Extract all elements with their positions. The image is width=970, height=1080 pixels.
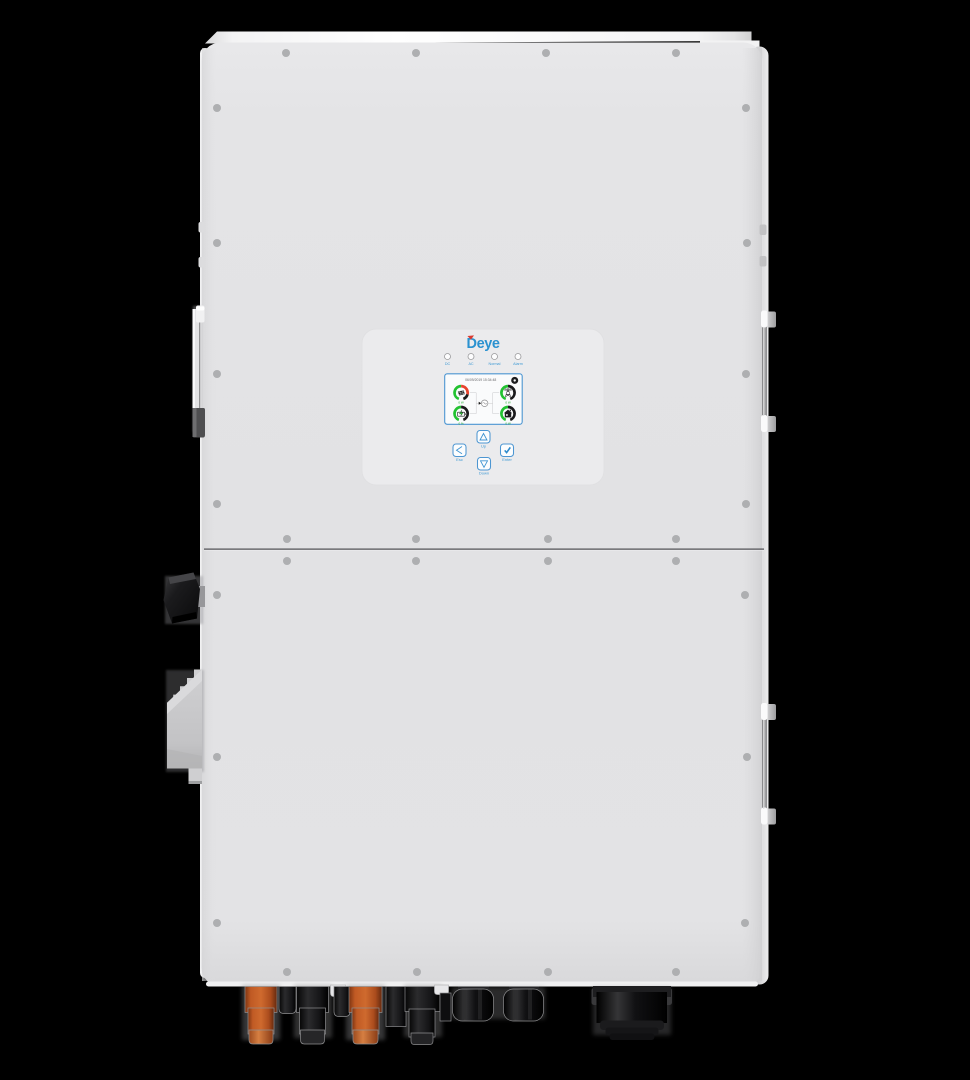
- svg-text:0 W: 0 W: [505, 401, 511, 405]
- svg-text:Alarm: Alarm: [513, 362, 523, 366]
- svg-text:Down: Down: [479, 471, 489, 476]
- svg-text:Enter: Enter: [502, 457, 512, 462]
- svg-text:Esc: Esc: [456, 457, 463, 462]
- svg-text:Up: Up: [481, 444, 487, 449]
- svg-text:DC: DC: [445, 362, 451, 366]
- svg-text:0 W: 0 W: [505, 421, 511, 425]
- svg-text:Normal: Normal: [489, 362, 501, 366]
- svg-text:AC: AC: [468, 362, 473, 366]
- svg-text:0 %: 0 %: [459, 421, 465, 425]
- svg-text:06/09/2019 15:34:48: 06/09/2019 15:34:48: [465, 378, 496, 382]
- svg-text:0 W: 0 W: [458, 401, 464, 405]
